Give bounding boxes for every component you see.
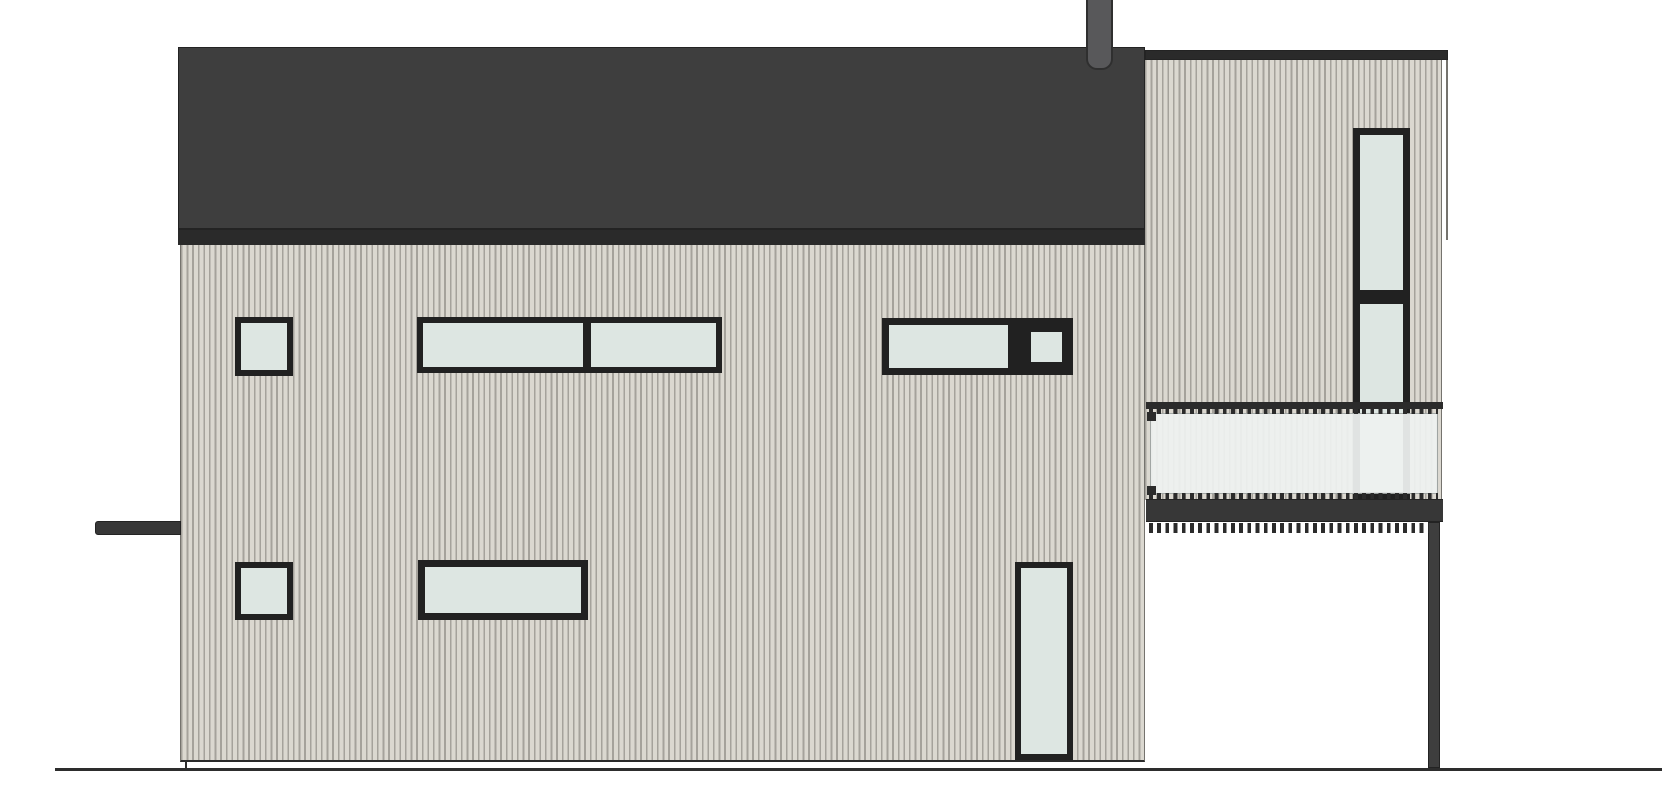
window-upper-right-band-glass-2 xyxy=(1031,332,1062,362)
balcony-glass-bracket-bottom xyxy=(1147,486,1156,495)
window-upper-left-small xyxy=(235,317,293,376)
entry-awning-bar xyxy=(95,521,181,535)
window-lower-middle-wide xyxy=(418,560,588,620)
balcony-soffit-dashes xyxy=(1149,523,1429,533)
tower-right-edge-line xyxy=(1446,60,1448,240)
balcony-baluster-dashes-top xyxy=(1149,409,1438,414)
window-lower-right-tall xyxy=(1015,562,1073,760)
window-lower-left-small xyxy=(235,562,293,620)
roof-fascia xyxy=(178,228,1145,245)
grade-step-line xyxy=(185,760,187,770)
window-lower-right-tall-glass-1 xyxy=(1021,568,1067,754)
window-upper-left-small-glass-1 xyxy=(241,323,287,370)
ground-line xyxy=(55,768,1662,771)
window-upper-middle-band xyxy=(417,317,722,373)
balcony-deck-fascia xyxy=(1146,499,1443,522)
window-lower-left-small-glass-1 xyxy=(241,568,287,614)
balcony-handrail xyxy=(1146,402,1443,409)
balcony-glass-bracket-top xyxy=(1147,412,1156,421)
window-lower-middle-wide-glass-1 xyxy=(425,567,581,613)
balcony-glass-panel xyxy=(1150,413,1438,494)
tower-roof-band xyxy=(1145,50,1448,60)
window-upper-right-band-glass-1 xyxy=(889,325,1008,368)
window-tower-tall-glass-1 xyxy=(1360,135,1403,290)
window-upper-middle-band-glass-2 xyxy=(591,323,716,367)
chimney xyxy=(1086,0,1113,70)
main-roof xyxy=(178,47,1145,228)
balcony-support-post xyxy=(1428,522,1440,768)
window-upper-middle-band-glass-1 xyxy=(423,323,583,367)
elevation-drawing xyxy=(0,0,1670,800)
window-upper-right-band xyxy=(882,318,1073,375)
